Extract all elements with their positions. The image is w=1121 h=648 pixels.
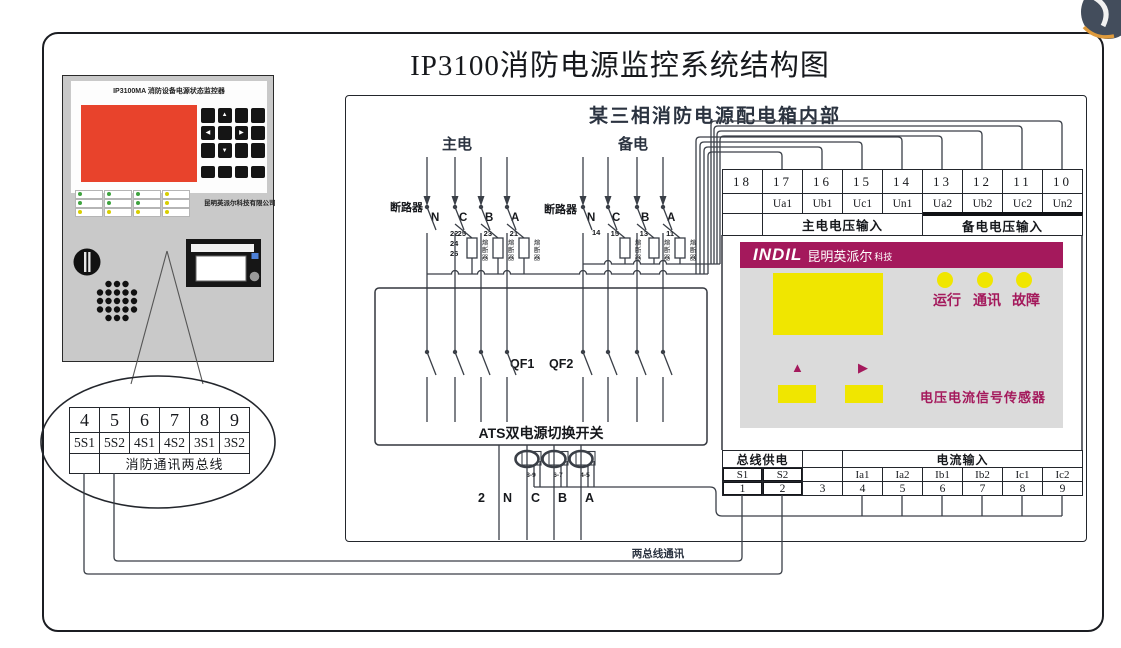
ct-label: 8-9 [526,472,535,479]
signal-cell [723,194,763,214]
terminal-number: 13 [923,170,963,194]
sensor-name-label: 电压电流信号传感器 [920,387,1046,406]
signal-cell: Ia2 [883,468,923,482]
qf2-label: QF2 [549,357,573,371]
sensor-button [778,385,816,403]
signal-cell: Ua1 [763,194,803,214]
keypad-button [251,108,265,123]
sensor-brand-logo: INDIL [753,245,802,265]
device-display-screen [81,105,197,182]
terminal-code: 3S2 [220,433,250,454]
keypad-button [251,166,265,178]
backup-breaker-label: 断路器 [544,201,577,217]
comm-led-label: 通讯 [973,290,1001,310]
distribution-box-title: 某三相消防电源配电箱内部 [589,101,841,128]
fire-bus-terminal-table: 4 5 6 7 8 9 5S1 5S2 4S1 4S2 3S1 3S2 消防通讯… [69,407,250,474]
sensor-display [773,273,883,335]
led-chip [104,199,132,208]
signal-cell: S2 [763,468,803,482]
led-chip [75,190,103,199]
terminal-number: 8 [190,408,220,433]
output-a: A [585,491,594,505]
signal-cell [803,468,843,482]
run-led-label: 运行 [933,290,961,310]
output-n: N [503,491,512,505]
voltage-terminal-table: 18 17 16 15 14 13 12 11 10 Ua1 Ub1 Uc1 U… [722,169,1083,236]
terminal-code: 5S1 [70,433,100,454]
terminal-number: 14 [883,170,923,194]
keypad-button [218,166,232,178]
terminal-number: 4 [70,408,100,433]
main-voltage-input-label: 主电电压输入 [763,214,923,236]
backup-phase-c: C [612,212,620,224]
main-phase-n: N [431,212,439,224]
keypad-button [201,166,215,178]
fuse-word: 熔断器 [660,239,670,262]
keypad-button [235,108,249,123]
fuse-number: 13 [640,229,648,238]
led-chip [133,199,161,208]
fuse-word: 熔断器 [686,239,696,262]
terminal-number: 5 [100,408,130,433]
terminal-number: 9 [220,408,250,433]
keypad-button [235,143,249,158]
keypad-button [235,166,249,178]
terminal-number: 16 [803,170,843,194]
terminal-number: 2 [763,482,803,496]
signal-cell: Uc1 [843,194,883,214]
ct-label: 4-5 [580,472,589,479]
right-triangle-key: ▶ [858,360,868,376]
led-chip [162,199,190,208]
terminal-number: 5 [883,482,923,496]
terminal-code: 4S1 [130,433,160,454]
sensor-header-bar: INDIL 昆明英派尔 科技 [740,242,1063,268]
backup-phase-n: N [587,212,595,224]
empty-cell [70,454,100,474]
monitor-device: IP3100MA 消防设备电源状态监控器 ▲ ◀ ▶ ▼ 昆明英派尔科技有限公司 [62,75,274,362]
terminal-number: 17 [763,170,803,194]
comm-led [977,272,993,288]
empty-cell [803,451,843,468]
led-chip [162,190,190,199]
page-title: IP3100消防电源监控系统结构图 [410,42,830,84]
terminal-number: 10 [1043,170,1083,194]
keypad-button [201,143,215,158]
device-company-label: 昆明英派尔科技有限公司 [204,197,276,207]
signal-cell: S1 [723,468,763,482]
signal-cell: Ub2 [963,194,1003,214]
signal-cell: Ub1 [803,194,843,214]
sensor-button [845,385,883,403]
sensor-brand-suffix: 科技 [874,250,892,263]
terminal-number: 7 [160,408,190,433]
signal-cell: Un1 [883,194,923,214]
terminal-number: 7 [963,482,1003,496]
backup-voltage-input-label: 备电电压输入 [923,212,1083,236]
diagram-stage: IP3100消防电源监控系统结构图 某三相消防电源配电箱内部 IP3100MA … [0,0,1121,648]
terminal-number: 12 [963,170,1003,194]
terminal-number: 1 [723,482,763,496]
output-c: C [531,491,540,505]
terminal-number: 9 [1043,482,1083,496]
signal-cell: Ib2 [963,468,1003,482]
led-chip [133,190,161,199]
keypad-button [251,143,265,158]
left-arrow-button: ◀ [201,126,215,141]
main-phase-a: A [511,212,519,224]
fuse-word: 熔断器 [478,239,488,262]
fault-led [1016,272,1032,288]
main-power-label: 主电 [442,133,472,154]
backup-power-label: 备电 [618,133,648,154]
main-phase-c: C [459,212,467,224]
terminal-code: 3S1 [190,433,220,454]
signal-cell: Ic2 [1043,468,1083,482]
signal-cell: Un2 [1043,194,1083,214]
ct-label: 6-7 [553,472,562,479]
led-chip [162,208,190,217]
signal-cell: Uc2 [1003,194,1043,214]
main-phase-b: B [485,212,493,224]
fuse-number: 15 [611,229,619,238]
output-prefix: 2 [478,491,485,505]
bus-comm-label: 两总线通讯 [632,546,685,561]
up-arrow-button: ▲ [218,108,232,123]
current-input-label: 电流输入 [843,451,1083,468]
device-title: IP3100MA 消防设备电源状态监控器 [113,86,225,96]
terminal-number: 15 [843,170,883,194]
device-keypad: ▲ ◀ ▶ ▼ [201,108,265,158]
led-chip [75,199,103,208]
fuse-word: 熔断器 [631,239,641,262]
fuse-number: 11 [666,229,674,238]
terminal-code: 5S2 [100,433,130,454]
terminal-number: 8 [1003,482,1043,496]
right-arrow-button: ▶ [235,126,249,141]
down-arrow-button: ▼ [218,143,232,158]
run-led [937,272,953,288]
signal-cell: Ua2 [923,194,963,214]
keypad-button [201,108,215,123]
backup-phase-a: A [667,212,675,224]
led-chip [104,190,132,199]
led-chip [104,208,132,217]
led-chip [75,208,103,217]
sensor-brand-cn: 昆明英派尔 [807,246,872,265]
terminal-number: 3 [803,482,843,496]
fuse-word: 熔断器 [504,239,514,262]
terminal-number: 18 [723,170,763,194]
terminal-number: 6 [130,408,160,433]
backup-n-wire-number: 14 [592,228,600,237]
ats-label: ATS双电源切换开关 [479,423,604,443]
fire-bus-caption: 消防通讯两总线 [100,454,250,474]
bus-power-label: 总线供电 [723,451,803,468]
backup-phase-b: B [641,212,649,224]
device-function-keys [201,166,265,178]
signal-cell: Ib1 [923,468,963,482]
qf1-label: QF1 [510,357,534,371]
current-terminal-table: 总线供电 电流输入 S1 S2 Ia1 Ia2 Ib1 Ib2 Ic1 Ic2 … [722,450,1083,496]
fuse-word: 熔断器 [530,239,540,262]
output-b: B [558,491,567,505]
led-chip [133,208,161,217]
signal-cell: Ia1 [843,468,883,482]
keypad-button [251,126,265,141]
sensor-front-panel: 运行 通讯 故障 ▲ ▶ 电压电流信号传感器 [740,268,1063,428]
up-triangle-key: ▲ [791,360,804,375]
signal-cell: Ic1 [1003,468,1043,482]
terminal-number: 11 [1003,170,1043,194]
fuse-number: 21 [510,229,518,238]
fuse-number: 25 [458,229,466,238]
fuse-number: 23 [484,229,492,238]
main-breaker-label: 断路器 [390,199,423,215]
keypad-button [218,126,232,141]
terminal-number: 6 [923,482,963,496]
fault-led-label: 故障 [1012,290,1040,310]
terminal-code: 4S2 [160,433,190,454]
empty-cell [723,214,763,236]
terminal-number: 4 [843,482,883,496]
